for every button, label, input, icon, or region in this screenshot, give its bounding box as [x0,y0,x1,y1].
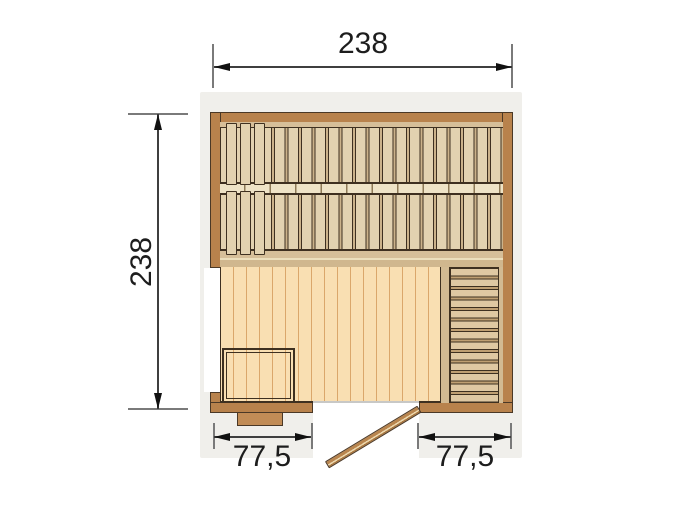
heater-inner-outline [226,352,291,399]
dimension-line-top [214,66,512,68]
sauna-floor-plan: 238 238 77,5 77,5 [0,0,700,525]
arrowhead-icon [419,433,435,441]
dimension-bottom-left-label: 77,5 [212,441,312,473]
door-opening [313,396,419,458]
arrowhead-icon [154,393,162,409]
wall-bottom-left [210,402,313,413]
glass-element [204,268,220,392]
wall-right [502,112,513,413]
arrowhead-icon [494,433,510,441]
headrest-slat [254,123,265,185]
headrest-slat [240,191,251,255]
headrest-slat [240,123,251,185]
arrowhead-icon [214,433,230,441]
dimension-top-label: 238 [313,28,413,60]
step-bench-rail [440,267,450,403]
arrowhead-icon [154,114,162,130]
dimension-left-label: 238 [126,232,158,292]
headrest-slat [226,123,237,185]
arrowhead-icon [214,63,230,71]
wall-bottom-right [419,402,513,413]
base-skid [237,413,283,426]
arrowhead-icon [295,433,311,441]
step-bench-slats [450,267,499,403]
door-threshold [313,401,419,403]
bench-area [220,122,503,267]
step-bench-edge [499,267,503,403]
heater-outline [222,348,295,403]
dimension-bottom-right-label: 77,5 [415,441,515,473]
headrest-slat [226,191,237,255]
arrowhead-icon [496,63,512,71]
headrest-slat [254,191,265,255]
